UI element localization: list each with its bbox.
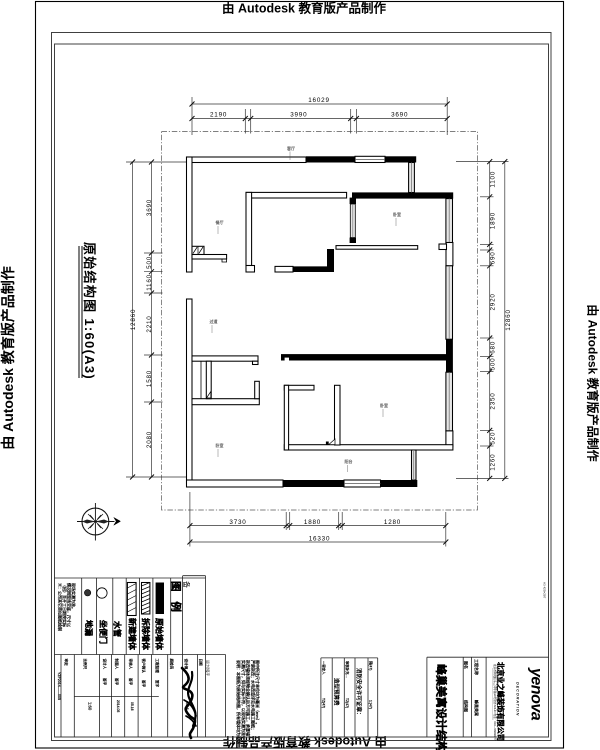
svg-text:1580: 1580 bbox=[146, 370, 153, 387]
svg-text:TZ(47): TZ(47) bbox=[322, 698, 326, 708]
svg-text:1280: 1280 bbox=[384, 519, 401, 526]
svg-text:地漏: 地漏 bbox=[84, 620, 94, 636]
svg-text:YZF2014——005: YZF2014——005 bbox=[57, 672, 61, 700]
svg-text:原始墙体: 原始墙体 bbox=[155, 618, 165, 651]
svg-text:签字: 签字 bbox=[115, 678, 120, 686]
svg-text:16029: 16029 bbox=[308, 97, 330, 104]
svg-text:坐便门: 坐便门 bbox=[99, 620, 109, 644]
svg-text:1100: 1100 bbox=[490, 171, 497, 188]
svg-text:3690: 3690 bbox=[146, 199, 153, 216]
svg-text:由 Autodesk 教育版产品制作: 由 Autodesk 教育版产品制作 bbox=[586, 304, 600, 461]
svg-text:卧室: 卧室 bbox=[216, 442, 224, 448]
svg-text:500: 500 bbox=[490, 358, 497, 371]
svg-text:1:60: 1:60 bbox=[88, 702, 93, 711]
svg-text:餐厅: 餐厅 bbox=[216, 219, 224, 225]
svg-text:客厅: 客厅 bbox=[287, 145, 295, 151]
svg-text:预(47): 预(47) bbox=[369, 661, 374, 670]
svg-text:690: 690 bbox=[490, 251, 497, 264]
svg-text:客户确认: 客户确认 bbox=[142, 659, 147, 674]
svg-text:签字: 签字 bbox=[129, 678, 134, 686]
svg-text:结构图: 结构图 bbox=[464, 700, 470, 712]
svg-text:造型预算费: 造型预算费 bbox=[333, 678, 341, 706]
svg-text:1:(47): 1:(47) bbox=[369, 700, 373, 709]
svg-text:卧室: 卧室 bbox=[380, 402, 388, 408]
svg-text:1890: 1890 bbox=[490, 212, 497, 229]
svg-text:签字: 签字 bbox=[142, 680, 147, 688]
svg-text:2350: 2350 bbox=[490, 392, 497, 409]
svg-text:过道: 过道 bbox=[210, 318, 218, 324]
svg-text:审核人: 审核人 bbox=[129, 659, 134, 670]
svg-text:消防安全许可证章：: 消防安全许可证章： bbox=[355, 668, 363, 718]
svg-text:TZ(47): TZ(47) bbox=[345, 698, 349, 708]
svg-text:工程名称: 工程名称 bbox=[474, 659, 480, 675]
svg-text:2190: 2190 bbox=[210, 112, 227, 119]
svg-text:签字: 签字 bbox=[155, 680, 160, 688]
svg-text:A3 420×297: A3 420×297 bbox=[543, 582, 547, 599]
svg-text:1880: 1880 bbox=[304, 519, 321, 526]
svg-text:3690: 3690 bbox=[391, 112, 408, 119]
svg-text:新建墙体: 新建墙体 bbox=[127, 618, 137, 651]
svg-text:500: 500 bbox=[146, 256, 153, 269]
svg-text:拆除墙体: 拆除墙体 bbox=[141, 618, 151, 651]
svg-text:制图人: 制图人 bbox=[115, 659, 120, 670]
svg-text:设计人: 设计人 bbox=[103, 659, 108, 670]
svg-text:由 Autodesk 教育版产品制作: 由 Autodesk 教育版产品制作 bbox=[222, 1, 386, 16]
svg-text:日期: 日期 bbox=[199, 659, 204, 667]
svg-text:1260: 1260 bbox=[490, 454, 497, 471]
svg-text:卧室: 卧室 bbox=[393, 211, 401, 217]
svg-text:设计师签字: 设计师签字 bbox=[206, 660, 211, 676]
svg-text:设计师: 设计师 bbox=[184, 659, 189, 670]
svg-text:原始结构图 1:60(A3): 原始结构图 1:60(A3) bbox=[82, 242, 97, 380]
svg-text:阳台: 阳台 bbox=[345, 458, 353, 464]
svg-text:由 Autodesk 教育版产品制作: 由 Autodesk 教育版产品制作 bbox=[0, 266, 16, 450]
svg-text:比例尺: 比例尺 bbox=[83, 659, 88, 670]
svg-text:yenova: yenova bbox=[528, 667, 545, 721]
svg-text:DECORATION: DECORATION bbox=[516, 682, 520, 716]
svg-text:2014.05: 2014.05 bbox=[116, 700, 120, 712]
svg-text:1160: 1160 bbox=[146, 274, 153, 291]
svg-text:680: 680 bbox=[490, 341, 497, 354]
svg-text:2210: 2210 bbox=[146, 315, 153, 332]
svg-text:图名: 图名 bbox=[464, 661, 470, 669]
svg-text:图中所注尺寸单位均为毫米（mm）。: 图中所注尺寸单位均为毫米（mm）。 bbox=[255, 660, 261, 727]
svg-text:12860: 12860 bbox=[130, 309, 137, 331]
svg-text:520: 520 bbox=[490, 432, 497, 445]
svg-text:2920: 2920 bbox=[490, 293, 497, 310]
svg-text:2080: 2080 bbox=[146, 431, 153, 448]
svg-text:现场实测为准。: 现场实测为准。 bbox=[71, 583, 77, 611]
svg-text:审定: 审定 bbox=[64, 659, 69, 667]
svg-text:05.16: 05.16 bbox=[130, 702, 134, 711]
svg-text:质检员: 质检员 bbox=[170, 659, 175, 670]
svg-text:峰巢美寓: 峰巢美寓 bbox=[474, 700, 480, 716]
svg-text:一审定人: 一审定人 bbox=[322, 661, 327, 675]
svg-text:备: 备 bbox=[182, 581, 191, 588]
svg-text:峰巢美寓设计结构: 峰巢美寓设计结构 bbox=[435, 664, 449, 750]
svg-text:签字: 签字 bbox=[103, 678, 108, 686]
svg-text:12860: 12860 bbox=[505, 309, 512, 331]
svg-text:审核补充…: 审核补充… bbox=[345, 661, 350, 678]
svg-text:3990: 3990 bbox=[290, 112, 307, 119]
svg-text:工程监理: 工程监理 bbox=[155, 659, 160, 674]
svg-text:16330: 16330 bbox=[309, 535, 331, 542]
svg-text:水管: 水管 bbox=[113, 620, 123, 637]
svg-text:图 例: 图 例 bbox=[170, 581, 183, 615]
svg-text:北京市朝阳区东三环中路39号建外SOHO 电话：010—58: 北京市朝阳区东三环中路39号建外SOHO 电话：010—58696677 bbox=[493, 664, 497, 741]
svg-text:3730: 3730 bbox=[229, 519, 246, 526]
